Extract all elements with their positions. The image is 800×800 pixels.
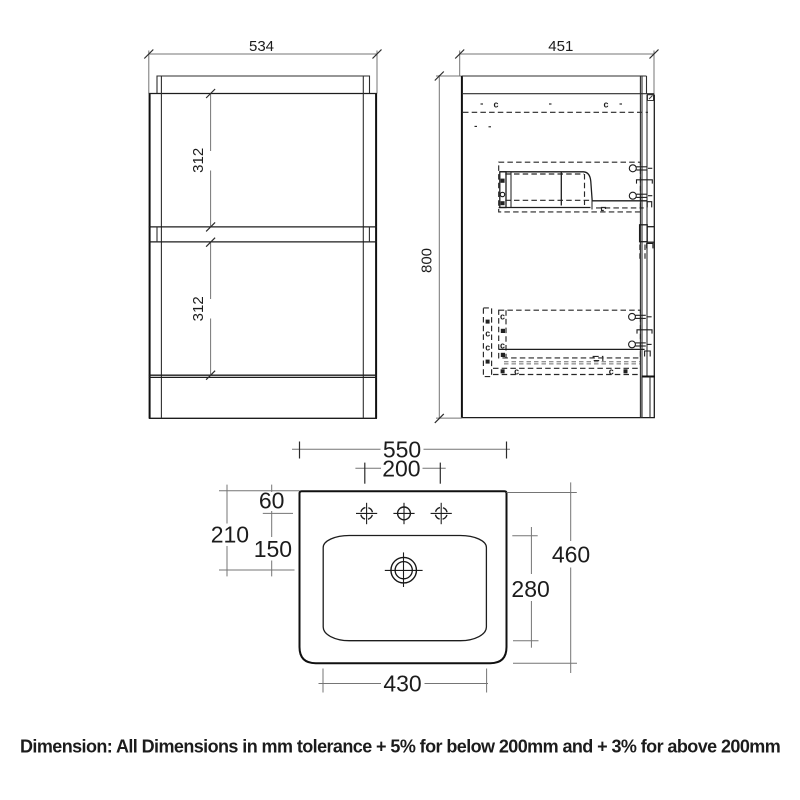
svg-text:c: c xyxy=(485,342,490,352)
svg-text:534: 534 xyxy=(249,38,274,55)
svg-text:c: c xyxy=(485,328,490,338)
svg-text:Dimension: All Dimensions in m: Dimension: All Dimensions in mm toleranc… xyxy=(20,737,780,757)
svg-text:800: 800 xyxy=(419,248,436,273)
svg-text:c: c xyxy=(500,311,505,321)
svg-text:c: c xyxy=(609,367,614,377)
svg-text:c: c xyxy=(603,100,608,110)
svg-text:60: 60 xyxy=(259,487,285,513)
svg-text:150: 150 xyxy=(254,536,292,562)
svg-text:430: 430 xyxy=(383,671,421,697)
svg-text:c: c xyxy=(514,367,519,377)
svg-text:280: 280 xyxy=(511,576,549,602)
svg-text:312: 312 xyxy=(190,148,207,173)
svg-text:312: 312 xyxy=(190,296,207,321)
svg-text:c: c xyxy=(493,100,498,110)
svg-text:210: 210 xyxy=(211,521,249,547)
svg-text:200: 200 xyxy=(382,455,420,481)
svg-text:451: 451 xyxy=(548,38,573,55)
svg-text:460: 460 xyxy=(552,542,590,568)
